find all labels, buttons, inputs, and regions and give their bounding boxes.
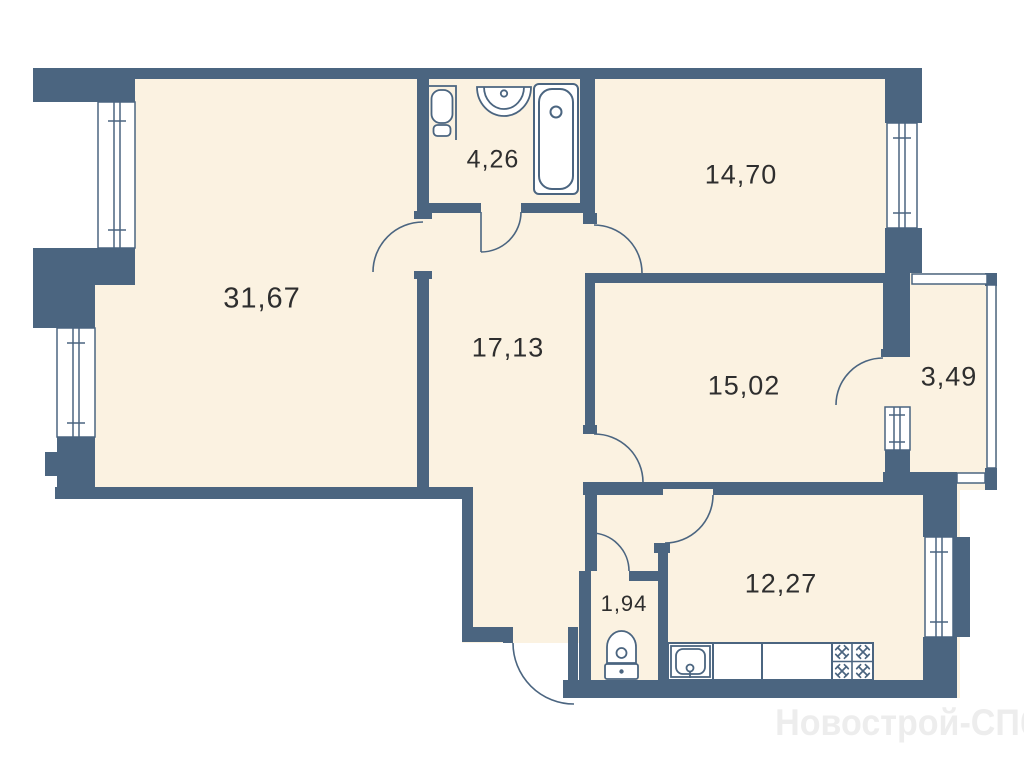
floor-plan-drawing xyxy=(0,0,1024,768)
window-bedroom-top xyxy=(887,123,917,228)
room-area-label-living: 31,67 xyxy=(223,283,301,316)
balcony-glazing-bottom xyxy=(957,473,985,483)
room-area-label-balcony: 3,49 xyxy=(921,362,978,393)
kitchen-fixtures xyxy=(668,643,873,680)
balcony-glazing-right xyxy=(987,285,996,468)
bathtub-icon xyxy=(534,84,578,194)
window-kitchen xyxy=(925,537,953,637)
room-area-label-kitchen: 12,27 xyxy=(745,569,818,600)
floor-plan: 31,67 17,13 4,26 14,70 15,02 3,49 1,94 1… xyxy=(0,0,1024,768)
window-living-lower xyxy=(57,328,95,437)
room-area-label-wc: 1,94 xyxy=(601,591,648,617)
room-area-label-hallway: 17,13 xyxy=(472,333,545,364)
window-living-upper xyxy=(98,102,135,248)
wc-fixtures xyxy=(605,631,638,679)
room-area-label-bedroom-mid: 15,02 xyxy=(708,371,781,402)
toilet-icon xyxy=(605,631,638,679)
balcony-glazing-top xyxy=(912,274,987,284)
stove-burners-icon xyxy=(832,643,873,680)
window-balcony-wall xyxy=(885,407,910,450)
room-area-label-bathroom: 4,26 xyxy=(467,146,520,175)
watermark-text: Новострой-СПб xyxy=(775,702,1024,744)
room-area-label-bedroom-top: 14,70 xyxy=(705,160,778,191)
